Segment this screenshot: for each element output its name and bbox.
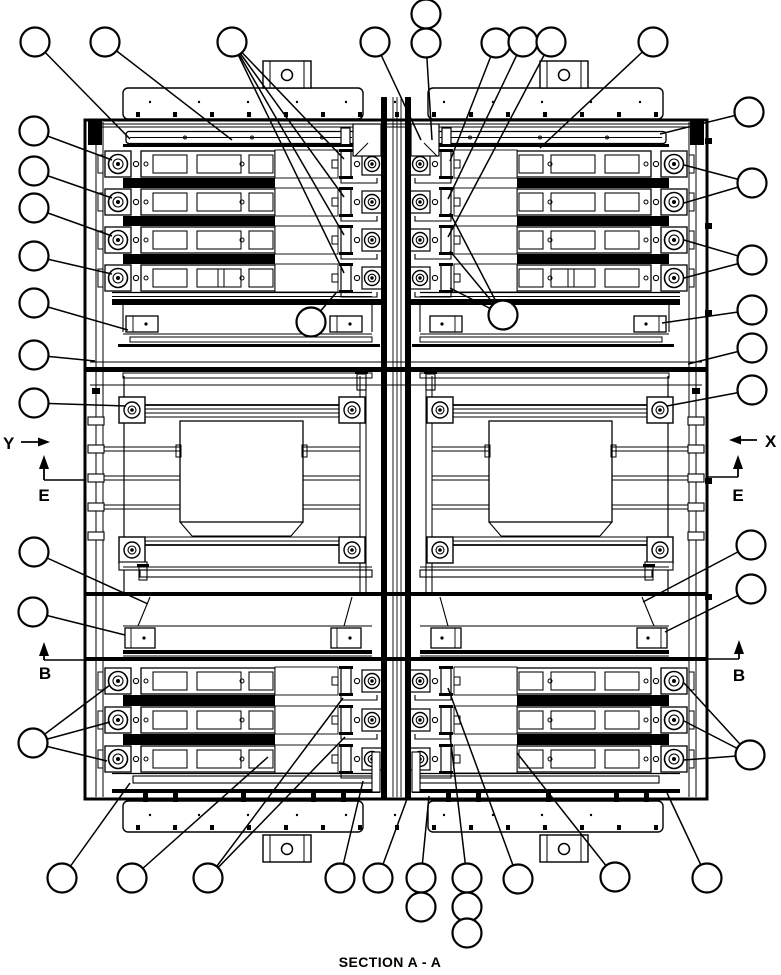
callout-balloon: [736, 741, 765, 770]
callout-balloon: [738, 334, 767, 363]
callout-balloon: [737, 575, 766, 604]
callout-balloon: [326, 864, 355, 893]
callout-balloon: [453, 919, 482, 948]
callout-balloon: [364, 864, 393, 893]
section-label-e-left: E: [38, 486, 49, 505]
callout-balloon: [453, 893, 482, 922]
callout-balloon: [20, 538, 49, 567]
callout-balloon: [20, 389, 49, 418]
module-row: [409, 666, 694, 700]
drawing-title: SECTION A - A: [339, 954, 441, 970]
callout-balloon: [20, 194, 49, 223]
module-row: [98, 666, 383, 700]
callout-balloon: [738, 296, 767, 325]
right-half: [409, 121, 704, 802]
left-half: [88, 121, 383, 802]
y-direction-arrow: Y: [3, 434, 50, 453]
callout-balloon: [453, 864, 482, 893]
x-direction-arrow: X: [729, 432, 777, 451]
callout-balloon: [482, 29, 511, 58]
callout-balloon: [20, 289, 49, 318]
callout-balloon: [737, 531, 766, 560]
module-row: [409, 149, 694, 183]
callout-balloon: [738, 169, 767, 198]
callout-balloon: [297, 308, 326, 337]
callout-balloon: [407, 864, 436, 893]
callout-balloon: [537, 28, 566, 57]
callout-balloon: [21, 28, 50, 57]
callout-balloon: [407, 893, 436, 922]
module-row: [409, 705, 694, 739]
equipment-linework: [85, 61, 712, 862]
callout-balloon: [20, 157, 49, 186]
callout-balloon: [20, 341, 49, 370]
callout-balloon: [509, 28, 538, 57]
module-row: [98, 705, 383, 739]
section-drawing: Y X E E: [0, 0, 781, 975]
callout-balloon: [20, 117, 49, 146]
callout-balloon: [218, 28, 247, 57]
leader-line: [62, 783, 130, 878]
section-label-b-left: B: [39, 664, 51, 683]
leader-line: [35, 42, 130, 139]
callout-balloon: [738, 246, 767, 275]
section-arrow-e-left: E: [38, 455, 86, 505]
callout-balloon: [19, 729, 48, 758]
y-direction-label: Y: [3, 434, 15, 453]
callout-balloon: [194, 864, 223, 893]
callout-balloon: [412, 29, 441, 58]
callout-balloon: [639, 28, 668, 57]
callout-balloon: [735, 98, 764, 127]
callout-balloon: [20, 242, 49, 271]
callout-balloon: [693, 864, 722, 893]
callout-balloon: [19, 598, 48, 627]
section-label-b-right: B: [733, 666, 745, 685]
callout-balloon: [738, 376, 767, 405]
callout-balloon: [48, 864, 77, 893]
callout-balloon: [504, 865, 533, 894]
x-direction-label: X: [765, 432, 777, 451]
module-row: [98, 225, 383, 259]
callout-balloon: [489, 301, 518, 330]
callout-balloon: [601, 863, 630, 892]
callout-balloon: [91, 28, 120, 57]
callout-balloon: [118, 864, 147, 893]
callout-balloon: [412, 0, 441, 29]
section-label-e-right: E: [732, 486, 743, 505]
callout-balloon: [361, 28, 390, 57]
drawing-page: Y X E E: [0, 0, 781, 975]
